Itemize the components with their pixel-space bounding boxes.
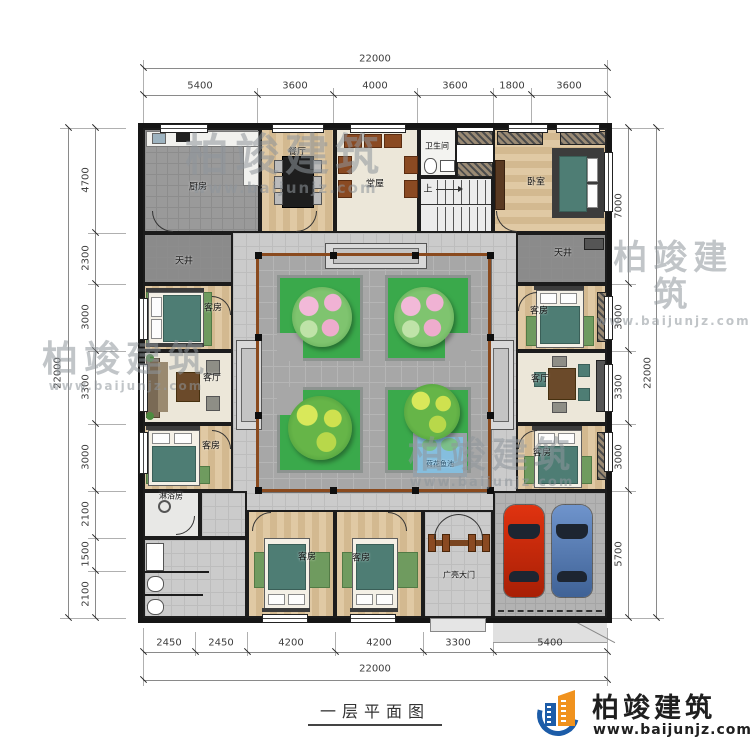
wardrobe bbox=[560, 131, 606, 145]
dim-right-overall: 22000 bbox=[643, 357, 654, 389]
label-dining: 餐厅 bbox=[288, 145, 306, 158]
dim-top-4: 1800 bbox=[499, 81, 524, 92]
dim-top-5: 3600 bbox=[556, 81, 581, 92]
dim-line-top-segments bbox=[143, 95, 607, 96]
dim-left-1: 2300 bbox=[81, 245, 92, 270]
green-tree-1 bbox=[288, 396, 352, 460]
car-blue bbox=[552, 505, 592, 597]
beam-bottom bbox=[262, 489, 487, 492]
dim-top-0: 5400 bbox=[187, 81, 212, 92]
dim-left-4: 3000 bbox=[81, 444, 92, 469]
hall-chair bbox=[344, 134, 362, 148]
page-title: 一层平面图 bbox=[280, 698, 470, 722]
dim-left-6: 1500 bbox=[81, 541, 92, 566]
label-guest-r1: 客房 bbox=[530, 304, 548, 317]
dim-right-1: 3000 bbox=[614, 304, 625, 329]
dim-left-5: 2100 bbox=[81, 501, 92, 526]
dim-right-0: 7000 bbox=[614, 193, 625, 218]
kitchen-sink bbox=[152, 133, 166, 144]
car-red bbox=[504, 505, 544, 597]
toilet bbox=[424, 158, 437, 174]
dim-bottom-1: 2450 bbox=[208, 638, 233, 649]
gate-beam bbox=[428, 540, 488, 546]
stairs-arrow bbox=[436, 189, 458, 190]
label-hall: 堂屋 bbox=[366, 177, 384, 190]
blossom-tree-2 bbox=[394, 287, 454, 347]
title-underline bbox=[308, 724, 442, 726]
label-bedroom: 卧室 bbox=[527, 175, 545, 188]
dim-bottom-2: 4200 bbox=[278, 638, 303, 649]
label-guest-l1: 客房 bbox=[204, 301, 222, 314]
label-kitchen: 厨房 bbox=[189, 180, 207, 193]
toilet bbox=[147, 576, 164, 592]
floorplan-canvas: 22000 5400 3600 4000 3600 1800 3600 2200… bbox=[0, 0, 750, 750]
dining-table bbox=[282, 156, 314, 208]
dim-bottom-4: 3300 bbox=[445, 638, 470, 649]
dim-top-2: 4000 bbox=[362, 81, 387, 92]
dim-top-3: 3600 bbox=[442, 81, 467, 92]
gate-steps bbox=[430, 618, 486, 632]
label-guest-r2: 客房 bbox=[533, 446, 551, 459]
dim-left-0: 4700 bbox=[81, 167, 92, 192]
label-stairs-up: 上 bbox=[423, 182, 432, 195]
washbasin bbox=[146, 543, 164, 571]
dim-bottom-0: 2450 bbox=[156, 638, 181, 649]
shower-head bbox=[158, 500, 171, 513]
kitchen-stove bbox=[176, 133, 190, 142]
logo-building-icon bbox=[538, 690, 584, 736]
dim-bottom-overall: 22000 bbox=[359, 664, 391, 675]
dim-left-2: 3000 bbox=[81, 304, 92, 329]
label-guest-b2: 客房 bbox=[352, 551, 370, 564]
garage-door bbox=[498, 610, 602, 612]
logo-name: 柏竣建筑 bbox=[592, 686, 716, 725]
dim-right-3: 3000 bbox=[614, 444, 625, 469]
closet bbox=[457, 162, 493, 177]
dim-right-2: 3300 bbox=[614, 374, 625, 399]
logo-url: www.baijunjz.com bbox=[593, 722, 750, 738]
dim-bottom-3: 4200 bbox=[366, 638, 391, 649]
coffee-table bbox=[176, 372, 200, 402]
pond-label: 荷花鱼池 bbox=[426, 459, 454, 469]
label-lightwell-right: 天井 bbox=[554, 246, 572, 259]
dim-line-top-overall bbox=[143, 68, 607, 69]
dim-left-overall: 22000 bbox=[53, 357, 64, 389]
label-shower: 淋浴房 bbox=[159, 491, 183, 502]
label-lightwell-left: 天井 bbox=[175, 254, 193, 267]
tv-console bbox=[495, 160, 505, 210]
dim-top-1: 3600 bbox=[282, 81, 307, 92]
kitchen-fridge bbox=[243, 146, 259, 186]
label-living-left: 客厅 bbox=[203, 371, 221, 384]
beam-left bbox=[256, 258, 259, 488]
closet bbox=[457, 131, 493, 145]
dim-left-7: 2100 bbox=[81, 581, 92, 606]
label-bathroom: 卫生间 bbox=[425, 141, 449, 152]
dim-left-3: 3300 bbox=[81, 374, 92, 399]
bath-sink bbox=[440, 160, 455, 172]
toilet bbox=[147, 599, 164, 615]
dim-top-overall: 22000 bbox=[359, 54, 391, 65]
plant bbox=[146, 354, 154, 362]
table bbox=[548, 368, 576, 400]
dim-right-4: 5700 bbox=[614, 541, 625, 566]
plant bbox=[146, 412, 154, 420]
wardrobe bbox=[497, 131, 543, 145]
logo: 柏竣建筑 www.baijunjz.com bbox=[538, 686, 743, 744]
label-guest-l2: 客房 bbox=[202, 439, 220, 452]
blossom-tree-1 bbox=[292, 287, 352, 347]
label-guest-b1: 客房 bbox=[298, 550, 316, 563]
label-living-right: 客厅 bbox=[531, 372, 549, 385]
label-gate: 广亮大门 bbox=[443, 570, 475, 581]
beam-right bbox=[488, 258, 491, 488]
beam-top bbox=[262, 253, 487, 256]
green-tree-2 bbox=[404, 384, 460, 440]
lotus-pond bbox=[413, 433, 467, 477]
dim-bottom-5: 5400 bbox=[537, 638, 562, 649]
